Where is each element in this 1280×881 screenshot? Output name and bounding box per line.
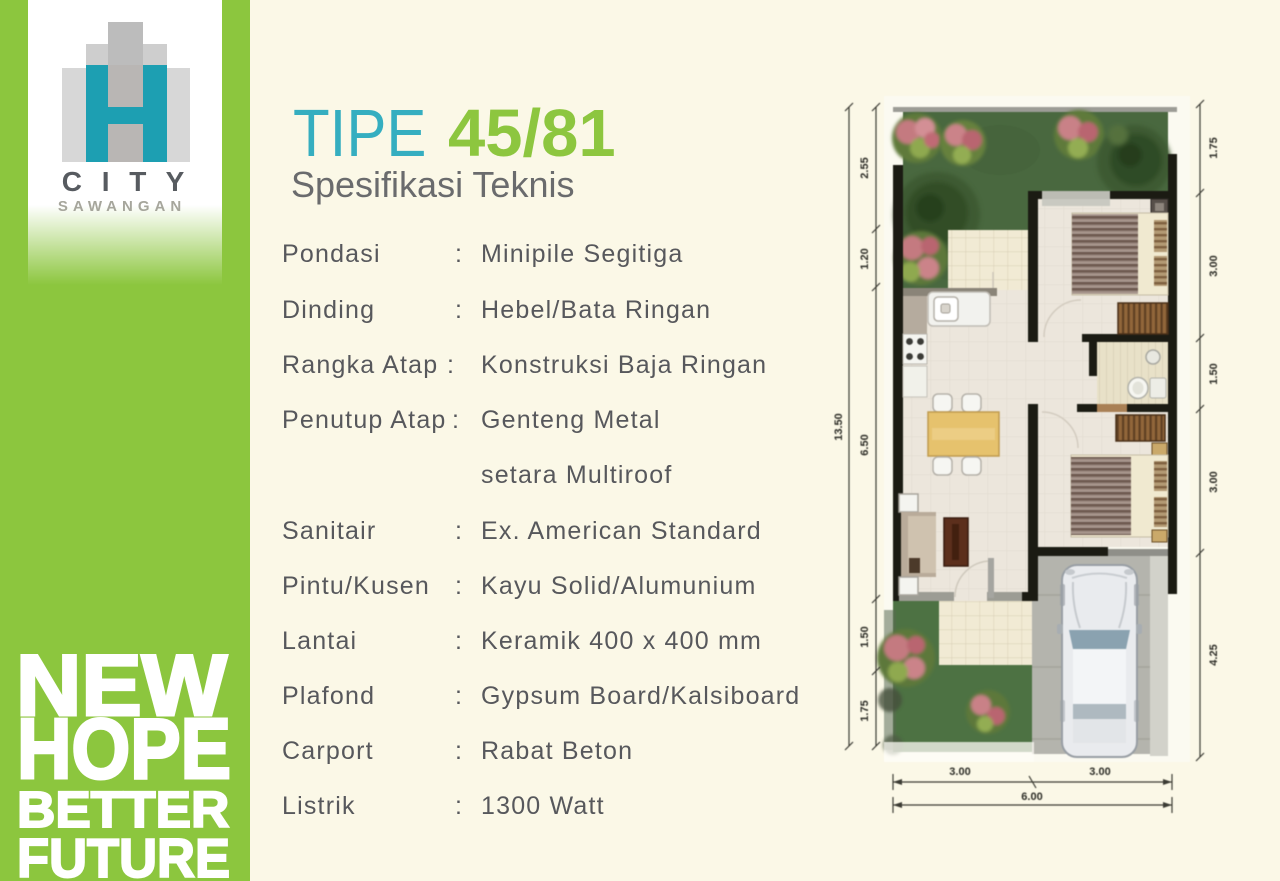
svg-text:1.75: 1.75 <box>859 700 871 721</box>
svg-text:2.55: 2.55 <box>859 157 871 178</box>
svg-text:3.00: 3.00 <box>1208 255 1220 276</box>
svg-text:4.25: 4.25 <box>1208 644 1220 665</box>
svg-text:6.00: 6.00 <box>1021 791 1042 803</box>
svg-text:13.50: 13.50 <box>833 413 845 441</box>
svg-text:3.00: 3.00 <box>1208 471 1220 492</box>
svg-text:1.20: 1.20 <box>859 248 871 269</box>
svg-text:6.50: 6.50 <box>859 434 871 455</box>
svg-text:1.50: 1.50 <box>1208 363 1220 384</box>
svg-text:3.00: 3.00 <box>1089 766 1110 778</box>
svg-text:3.00: 3.00 <box>949 766 970 778</box>
svg-text:1.75: 1.75 <box>1208 137 1220 158</box>
svg-text:1.50: 1.50 <box>859 626 871 647</box>
